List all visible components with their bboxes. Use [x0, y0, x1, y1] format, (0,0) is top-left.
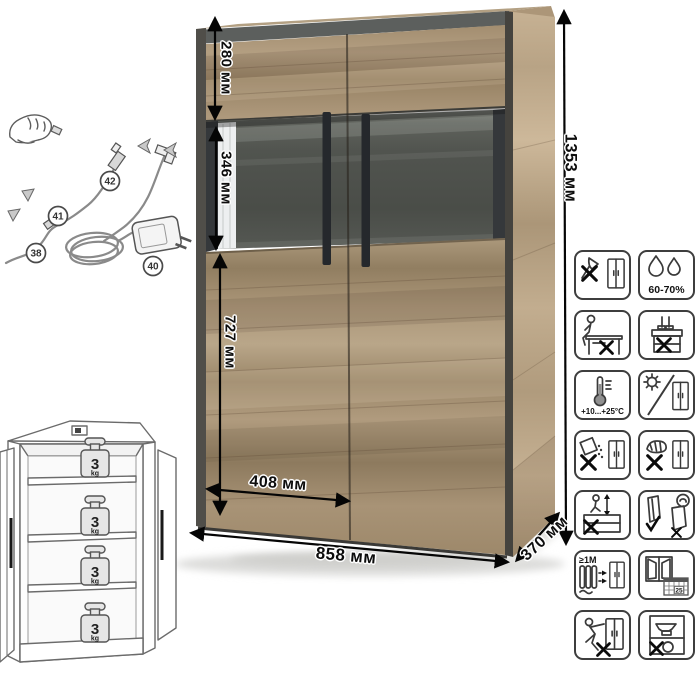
- hand-illustration: [10, 115, 62, 143]
- product-diagram: 280 мм 346 мм 727 мм 408 мм 858 мм 370 м…: [0, 0, 700, 678]
- no-dragging-icon: [574, 610, 631, 660]
- svg-text:kg: kg: [91, 579, 99, 586]
- svg-text:25: 25: [675, 588, 683, 595]
- temperature-range-icon: +10...+25°C: [574, 370, 631, 420]
- shelf-load-weight: 3 kg: [81, 603, 109, 643]
- transport-upright-icon: [638, 490, 695, 540]
- svg-text:60-70%: 60-70%: [648, 284, 685, 296]
- svg-text:38: 38: [30, 249, 42, 260]
- svg-text:kg: kg: [91, 471, 99, 478]
- dimension-label-lower-section: 727 мм: [222, 315, 239, 369]
- heat-source-distance-icon: ≥1M: [574, 550, 631, 600]
- ventilate-room-icon: 25: [638, 550, 695, 600]
- svg-text:41: 41: [52, 212, 64, 223]
- no-abrasive-cleaning-icon: [638, 430, 695, 480]
- svg-text:42: 42: [104, 177, 116, 188]
- dimension-label-total-height: 1353 мм: [561, 134, 580, 203]
- no-standing-icon: [638, 310, 695, 360]
- no-climbing-icon: [574, 490, 631, 540]
- direction-arrows: [8, 139, 176, 221]
- shelf-load-weight: 3 kg: [81, 546, 109, 586]
- humidity-icon: 60-70%: [638, 250, 695, 300]
- svg-text:+10...+25°C: +10...+25°C: [581, 407, 624, 416]
- no-sharp-tools-icon: [574, 250, 631, 300]
- no-aggressive-liquids-icon: [574, 430, 631, 480]
- shelf-load-diagram: 3 kg 3 kg 3 kg 3 kg: [0, 418, 195, 678]
- svg-text:kg: kg: [91, 529, 99, 536]
- led-wiring-diagram: 38 41 42 40: [0, 95, 200, 285]
- svg-text:40: 40: [147, 262, 159, 273]
- shelf-load-weight: 3 kg: [81, 438, 109, 478]
- shelf-load-weight: 3 kg: [81, 496, 109, 536]
- power-adapter: [131, 214, 192, 257]
- no-direct-sunlight-icon: [638, 370, 695, 420]
- care-icons-grid: 60-70%: [574, 250, 695, 660]
- svg-text:kg: kg: [91, 636, 99, 643]
- dimension-label-upper-section: 280 мм: [218, 41, 235, 95]
- no-sitting-icon: [574, 310, 631, 360]
- svg-text:≥1M: ≥1M: [579, 555, 596, 565]
- dimension-label-glass-section: 346 мм: [218, 151, 235, 205]
- no-overloading-icon: [638, 610, 695, 660]
